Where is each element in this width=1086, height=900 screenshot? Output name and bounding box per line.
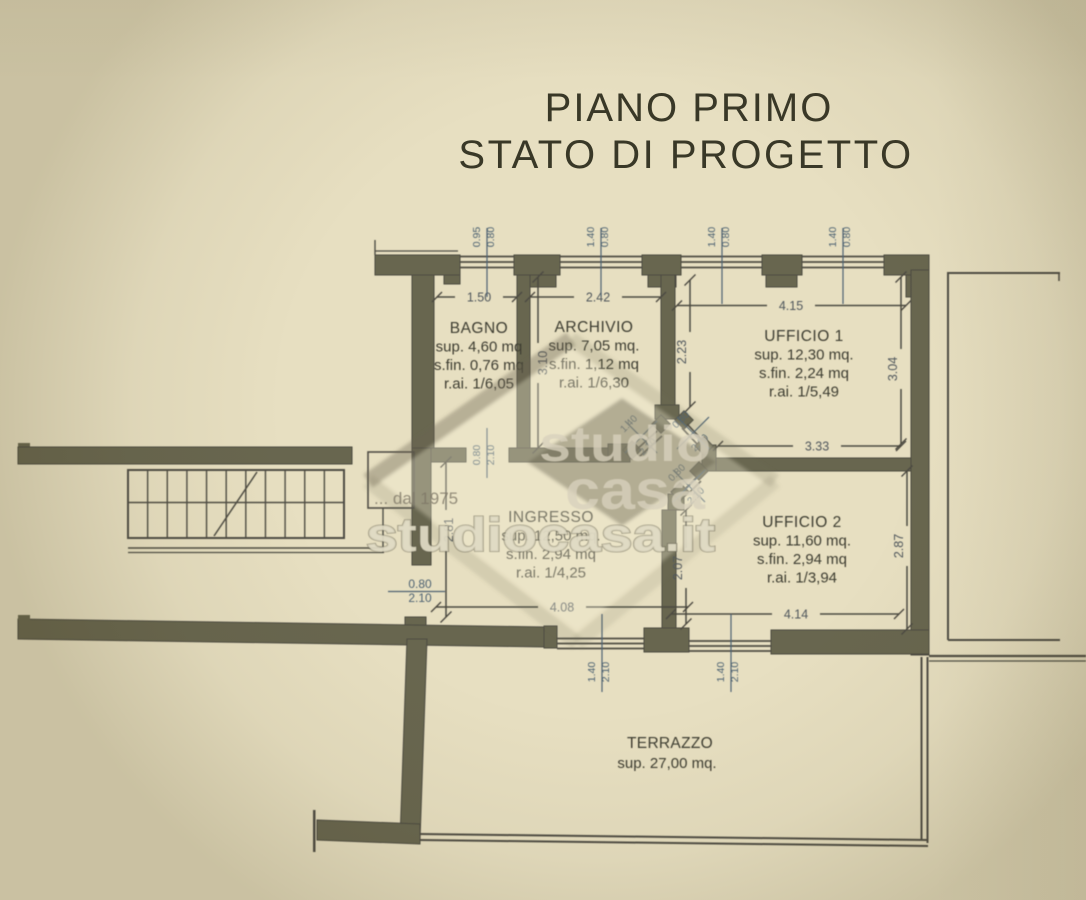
- svg-text:1.40: 1.40: [585, 227, 597, 248]
- svg-text:1.40: 1.40: [827, 227, 839, 248]
- svg-text:0.80: 0.80: [720, 227, 732, 248]
- svg-text:sup. 4,60 mq: sup. 4,60 mq: [436, 339, 523, 356]
- svg-text:studiocasa.it: studiocasa.it: [366, 508, 715, 561]
- svg-text:sup. 11,60 mq.: sup. 11,60 mq.: [753, 533, 851, 550]
- svg-text:1.40: 1.40: [715, 662, 727, 683]
- svg-text:3.33: 3.33: [805, 440, 829, 454]
- svg-text:0.80: 0.80: [599, 227, 611, 248]
- svg-text:1.40: 1.40: [706, 227, 718, 248]
- svg-text:2.87: 2.87: [892, 534, 906, 558]
- svg-text:... dal 1975: ... dal 1975: [374, 489, 458, 508]
- svg-text:BAGNO: BAGNO: [450, 320, 508, 337]
- svg-text:2.10: 2.10: [600, 662, 612, 683]
- svg-text:2.23: 2.23: [675, 340, 689, 364]
- svg-text:0.80: 0.80: [485, 227, 497, 248]
- svg-text:4.14: 4.14: [784, 608, 808, 622]
- svg-text:sup. 27,00 mq.: sup. 27,00 mq.: [617, 755, 716, 772]
- svg-text:TERRAZZO: TERRAZZO: [627, 735, 713, 752]
- svg-text:1.40: 1.40: [586, 662, 598, 683]
- svg-text:UFFICIO 2: UFFICIO 2: [762, 514, 841, 531]
- svg-text:r.ai. 1/5,49: r.ai. 1/5,49: [769, 384, 839, 401]
- svg-text:2.42: 2.42: [586, 291, 610, 305]
- svg-text:s.fin. 0,76 mq: s.fin. 0,76 mq: [434, 357, 524, 374]
- svg-text:s.fin. 2,94 mq: s.fin. 2,94 mq: [757, 551, 847, 568]
- svg-text:0.95: 0.95: [471, 227, 483, 248]
- svg-text:sup. 12,30 mq.: sup. 12,30 mq.: [754, 347, 853, 364]
- svg-text:r.ai. 1/3,94: r.ai. 1/3,94: [767, 570, 837, 587]
- svg-text:s.fin. 2,24 mq: s.fin. 2,24 mq: [759, 365, 849, 382]
- svg-text:3.04: 3.04: [886, 357, 900, 381]
- svg-text:2.10: 2.10: [729, 662, 741, 683]
- svg-text:4.15: 4.15: [779, 299, 803, 313]
- svg-text:UFFICIO 1: UFFICIO 1: [764, 328, 843, 345]
- svg-text:0.80: 0.80: [841, 227, 853, 248]
- svg-text:0.80: 0.80: [408, 577, 432, 591]
- svg-text:2.10: 2.10: [408, 591, 432, 605]
